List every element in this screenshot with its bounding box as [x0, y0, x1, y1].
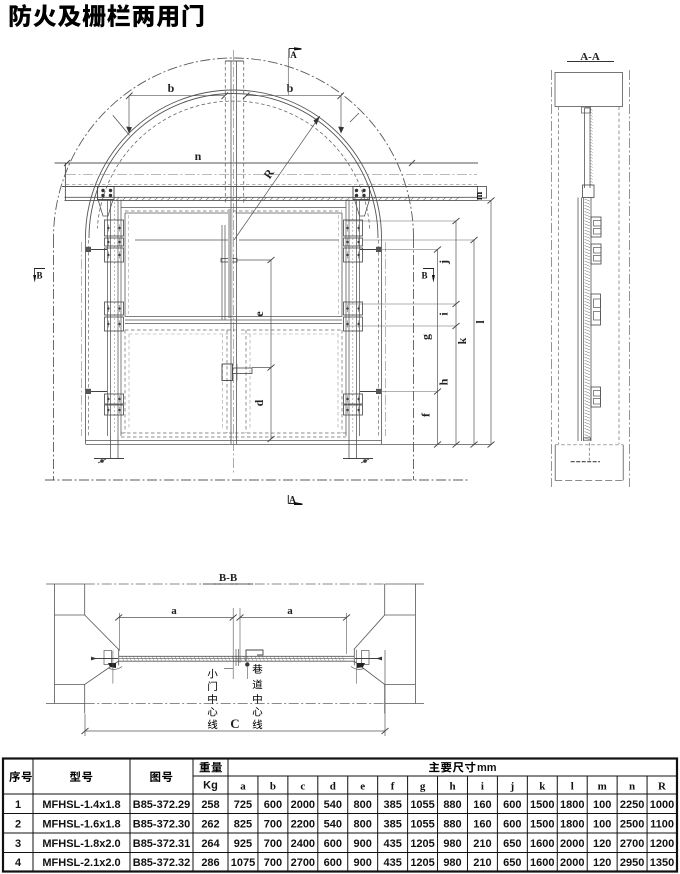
svg-text:g: g	[419, 334, 433, 340]
svg-text:1205: 1205	[410, 857, 434, 869]
svg-text:i: i	[437, 312, 451, 316]
svg-text:385: 385	[383, 799, 401, 811]
svg-text:c: c	[300, 781, 305, 793]
svg-text:1000: 1000	[650, 799, 674, 811]
svg-text:1800: 1800	[560, 799, 584, 811]
svg-text:b: b	[287, 81, 294, 95]
svg-text:264: 264	[201, 838, 220, 850]
svg-text:MFHSL-1.6x1.8: MFHSL-1.6x1.8	[42, 818, 120, 830]
svg-text:d: d	[330, 781, 336, 793]
svg-text:g: g	[420, 781, 426, 793]
svg-text:A: A	[290, 50, 297, 60]
svg-text:1055: 1055	[410, 799, 434, 811]
svg-text:f: f	[419, 412, 433, 417]
svg-text:h: h	[437, 378, 451, 385]
svg-text:160: 160	[473, 818, 491, 830]
svg-text:b: b	[270, 781, 276, 793]
svg-text:B: B	[36, 271, 42, 281]
svg-text:100: 100	[593, 818, 611, 830]
svg-text:B85-372.29: B85-372.29	[133, 799, 191, 811]
svg-text:k: k	[455, 337, 469, 344]
svg-text:MFHSL-1.8x2.0: MFHSL-1.8x2.0	[42, 838, 120, 850]
svg-text:4: 4	[15, 857, 22, 869]
svg-text:e: e	[360, 781, 365, 793]
svg-text:800: 800	[354, 799, 372, 811]
svg-text:650: 650	[503, 857, 521, 869]
svg-text:2250: 2250	[620, 799, 644, 811]
svg-text:n: n	[629, 781, 635, 793]
svg-text:2200: 2200	[291, 818, 315, 830]
svg-text:880: 880	[443, 799, 461, 811]
svg-text:262: 262	[201, 818, 219, 830]
svg-text:210: 210	[473, 838, 491, 850]
svg-text:mm: mm	[477, 762, 497, 774]
svg-text:2700: 2700	[291, 857, 315, 869]
svg-text:700: 700	[264, 838, 282, 850]
svg-text:2000: 2000	[291, 799, 315, 811]
svg-text:B85-372.31: B85-372.31	[133, 838, 191, 850]
svg-text:l: l	[571, 781, 574, 793]
svg-text:980: 980	[443, 857, 461, 869]
svg-text:650: 650	[503, 838, 521, 850]
svg-text:1075: 1075	[231, 857, 255, 869]
svg-text:2400: 2400	[291, 838, 315, 850]
svg-text:e: e	[252, 311, 266, 317]
svg-text:1350: 1350	[650, 857, 674, 869]
svg-text:Kg: Kg	[203, 780, 218, 792]
svg-text:2950: 2950	[620, 857, 644, 869]
svg-text:B85-372.32: B85-372.32	[133, 857, 191, 869]
svg-text:435: 435	[383, 857, 401, 869]
svg-text:2: 2	[15, 818, 21, 830]
svg-text:1600: 1600	[530, 838, 554, 850]
svg-text:h: h	[449, 781, 455, 793]
svg-text:1500: 1500	[530, 799, 554, 811]
svg-text:2500: 2500	[620, 818, 644, 830]
svg-text:2000: 2000	[560, 857, 584, 869]
svg-text:980: 980	[443, 838, 461, 850]
svg-text:B85-372.30: B85-372.30	[133, 818, 191, 830]
svg-text:k: k	[539, 781, 546, 793]
svg-text:3: 3	[15, 838, 21, 850]
svg-text:600: 600	[324, 838, 342, 850]
svg-text:a: a	[171, 605, 177, 617]
svg-text:1500: 1500	[530, 818, 554, 830]
svg-text:600: 600	[264, 799, 282, 811]
svg-text:825: 825	[234, 818, 252, 830]
svg-text:d: d	[252, 399, 266, 406]
svg-text:540: 540	[324, 799, 342, 811]
svg-text:j: j	[437, 260, 451, 265]
svg-text:160: 160	[473, 799, 491, 811]
svg-text:1800: 1800	[560, 818, 584, 830]
svg-text:n: n	[195, 149, 202, 163]
svg-text:120: 120	[593, 838, 611, 850]
svg-text:m: m	[598, 781, 607, 793]
svg-text:MFHSL-1.4x1.8: MFHSL-1.4x1.8	[42, 799, 120, 811]
svg-text:R: R	[260, 166, 277, 181]
svg-text:2700: 2700	[620, 838, 644, 850]
svg-text:900: 900	[354, 838, 372, 850]
svg-text:1055: 1055	[410, 818, 434, 830]
svg-text:700: 700	[264, 818, 282, 830]
svg-text:m: m	[474, 191, 485, 200]
svg-text:a: a	[287, 605, 293, 617]
svg-text:1600: 1600	[530, 857, 554, 869]
svg-text:900: 900	[354, 857, 372, 869]
svg-text:210: 210	[473, 857, 491, 869]
svg-text:i: i	[481, 781, 484, 793]
svg-text:j: j	[510, 781, 515, 793]
svg-text:a: a	[240, 781, 246, 793]
svg-text:286: 286	[201, 857, 219, 869]
svg-text:925: 925	[234, 838, 252, 850]
svg-text:600: 600	[324, 857, 342, 869]
svg-text:435: 435	[383, 838, 401, 850]
svg-text:B: B	[421, 271, 427, 281]
svg-text:540: 540	[324, 818, 342, 830]
svg-text:B-B: B-B	[219, 572, 238, 584]
svg-text:700: 700	[264, 857, 282, 869]
svg-text:120: 120	[593, 857, 611, 869]
svg-text:l: l	[473, 320, 487, 324]
svg-text:R: R	[658, 781, 667, 793]
svg-text:f: f	[391, 781, 395, 793]
svg-text:800: 800	[354, 818, 372, 830]
svg-text:C: C	[230, 716, 239, 731]
svg-text:2000: 2000	[560, 838, 584, 850]
svg-text:b: b	[168, 81, 175, 95]
svg-text:1205: 1205	[410, 838, 434, 850]
svg-text:880: 880	[443, 818, 461, 830]
svg-text:385: 385	[383, 818, 401, 830]
svg-text:725: 725	[234, 799, 252, 811]
svg-text:1100: 1100	[650, 818, 674, 830]
svg-text:258: 258	[201, 799, 219, 811]
svg-text:600: 600	[503, 818, 521, 830]
svg-text:MFHSL-2.1x2.0: MFHSL-2.1x2.0	[42, 857, 120, 869]
svg-text:600: 600	[503, 799, 521, 811]
svg-text:1: 1	[15, 799, 21, 811]
svg-text:1200: 1200	[650, 838, 674, 850]
svg-text:100: 100	[593, 799, 611, 811]
